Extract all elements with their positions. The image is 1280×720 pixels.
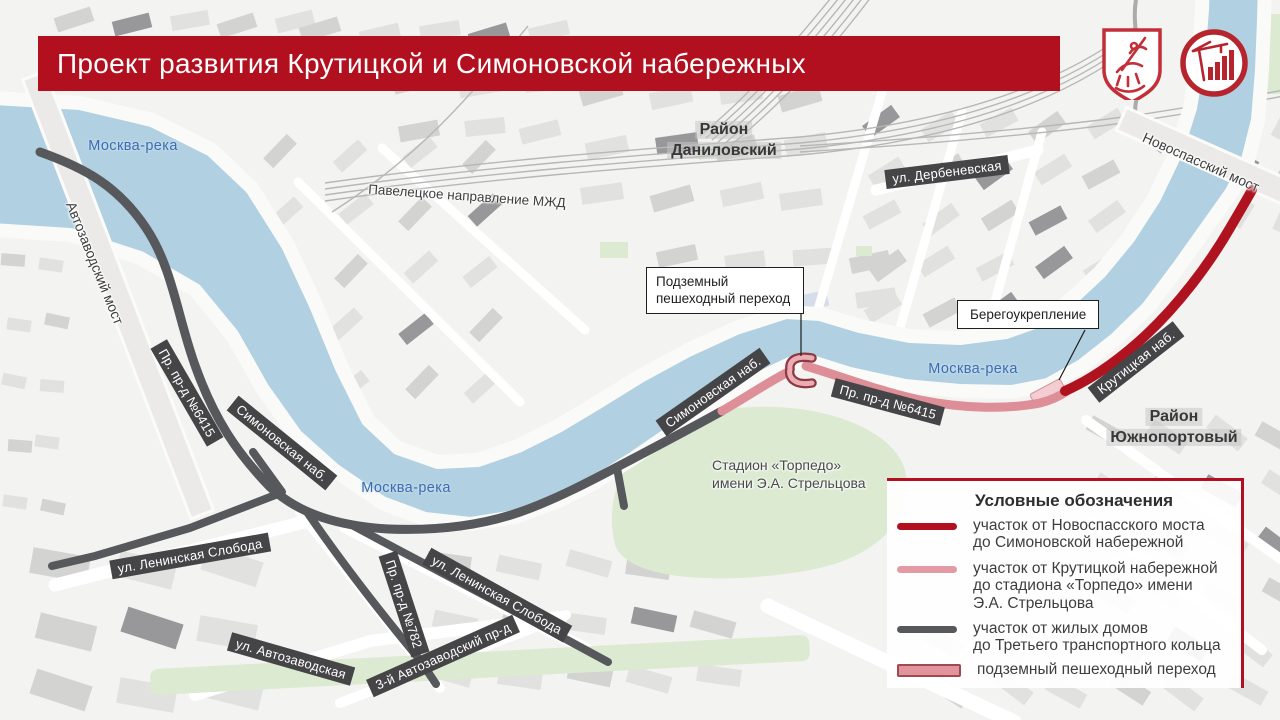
legend-swatch-pink [897,566,957,573]
legend-swatch-underpass [897,664,961,677]
district-danilovsky-line1: Район [696,121,753,139]
river-label-1: Москва-река [88,138,178,154]
legend-swatch-gray [897,626,957,633]
river-label-2: Москва-река [361,480,451,496]
moscow-coat-of-arms-icon [1100,26,1164,100]
legend-text-red: участок от Новоспасского моста до Симоно… [973,517,1205,552]
legend-panel: Условные обозначения участок от Новоспас… [887,478,1244,688]
legend-swatch-red [897,523,957,530]
street-banner-proezd-6415-1: Пр. пр-д №6415 [150,339,223,447]
legend-item-pink: участок от Крутицкой набережной до стади… [897,560,1218,612]
street-banner-simonovskaya-1: Симоновская наб. [227,396,338,491]
street-banner-proezd-782: Пр. пр-д №782 [379,551,430,658]
district-label-yuzhnoportovy: Район Южнопортовый [1106,408,1241,446]
district-yuzhnoportovy-line2: Южнопортовый [1106,429,1241,447]
street-banner-leninskaya-1: ул. Ленинская Слобода [109,533,270,580]
title-banner: Проект развития Крутицкой и Симоновской … [38,36,1060,91]
bridge-label-avtozavodsky: Автозаводский мост [63,199,127,326]
railway-label: Павелецкое направление МЖД [368,182,566,211]
legend-item-red: участок от Новоспасского моста до Симоно… [897,517,1205,552]
project-map-slide: Автозаводский мост Новоспасский мост Пав… [0,0,1280,720]
callout-bank-reinforcement: Берегоукрепление [957,300,1099,329]
callout-underpass: Подземный пешеходный переход [646,267,804,314]
legend-item-underpass: подземный пешеходный переход [897,661,1216,678]
legend-text-underpass: подземный пешеходный переход [977,661,1216,678]
street-banner-derbenevskaya: ул. Дербеневская [884,155,1009,189]
river-label-3: Москва-река [928,361,1018,377]
legend-item-gray: участок от жилых домов до Третьего транс… [897,620,1221,655]
construction-complex-icon [1178,27,1250,99]
street-banner-simonovskaya-2: Симоновская наб. [656,348,771,436]
district-danilovsky-line2: Даниловский [667,142,781,160]
legend-text-gray: участок от жилых домов до Третьего транс… [973,620,1221,655]
legend-text-pink: участок от Крутицкой набережной до стади… [973,560,1218,612]
district-label-danilovsky: Район Даниловский [667,121,781,159]
street-banner-krutitskaya: Крутицкая наб. [1088,321,1185,402]
logos [1100,26,1250,100]
bridge-label-novospassky: Новоспасский мост [1140,129,1261,195]
stadium-label: Стадион «Торпедо» имени Э.А. Стрельцова [712,456,866,492]
page-title: Проект развития Крутицкой и Симоновской … [57,48,806,80]
district-yuzhnoportovy-line1: Район [1146,408,1203,426]
legend-heading: Условные обозначения [975,491,1173,511]
street-banner-3-avtozavodsky: 3-й Автозаводский пр-д [366,615,520,697]
street-banner-avtozavodskaya: ул. Автозаводская [227,632,355,686]
street-banner-proezd-6415-2: Пр. пр-д №6415 [831,378,945,426]
